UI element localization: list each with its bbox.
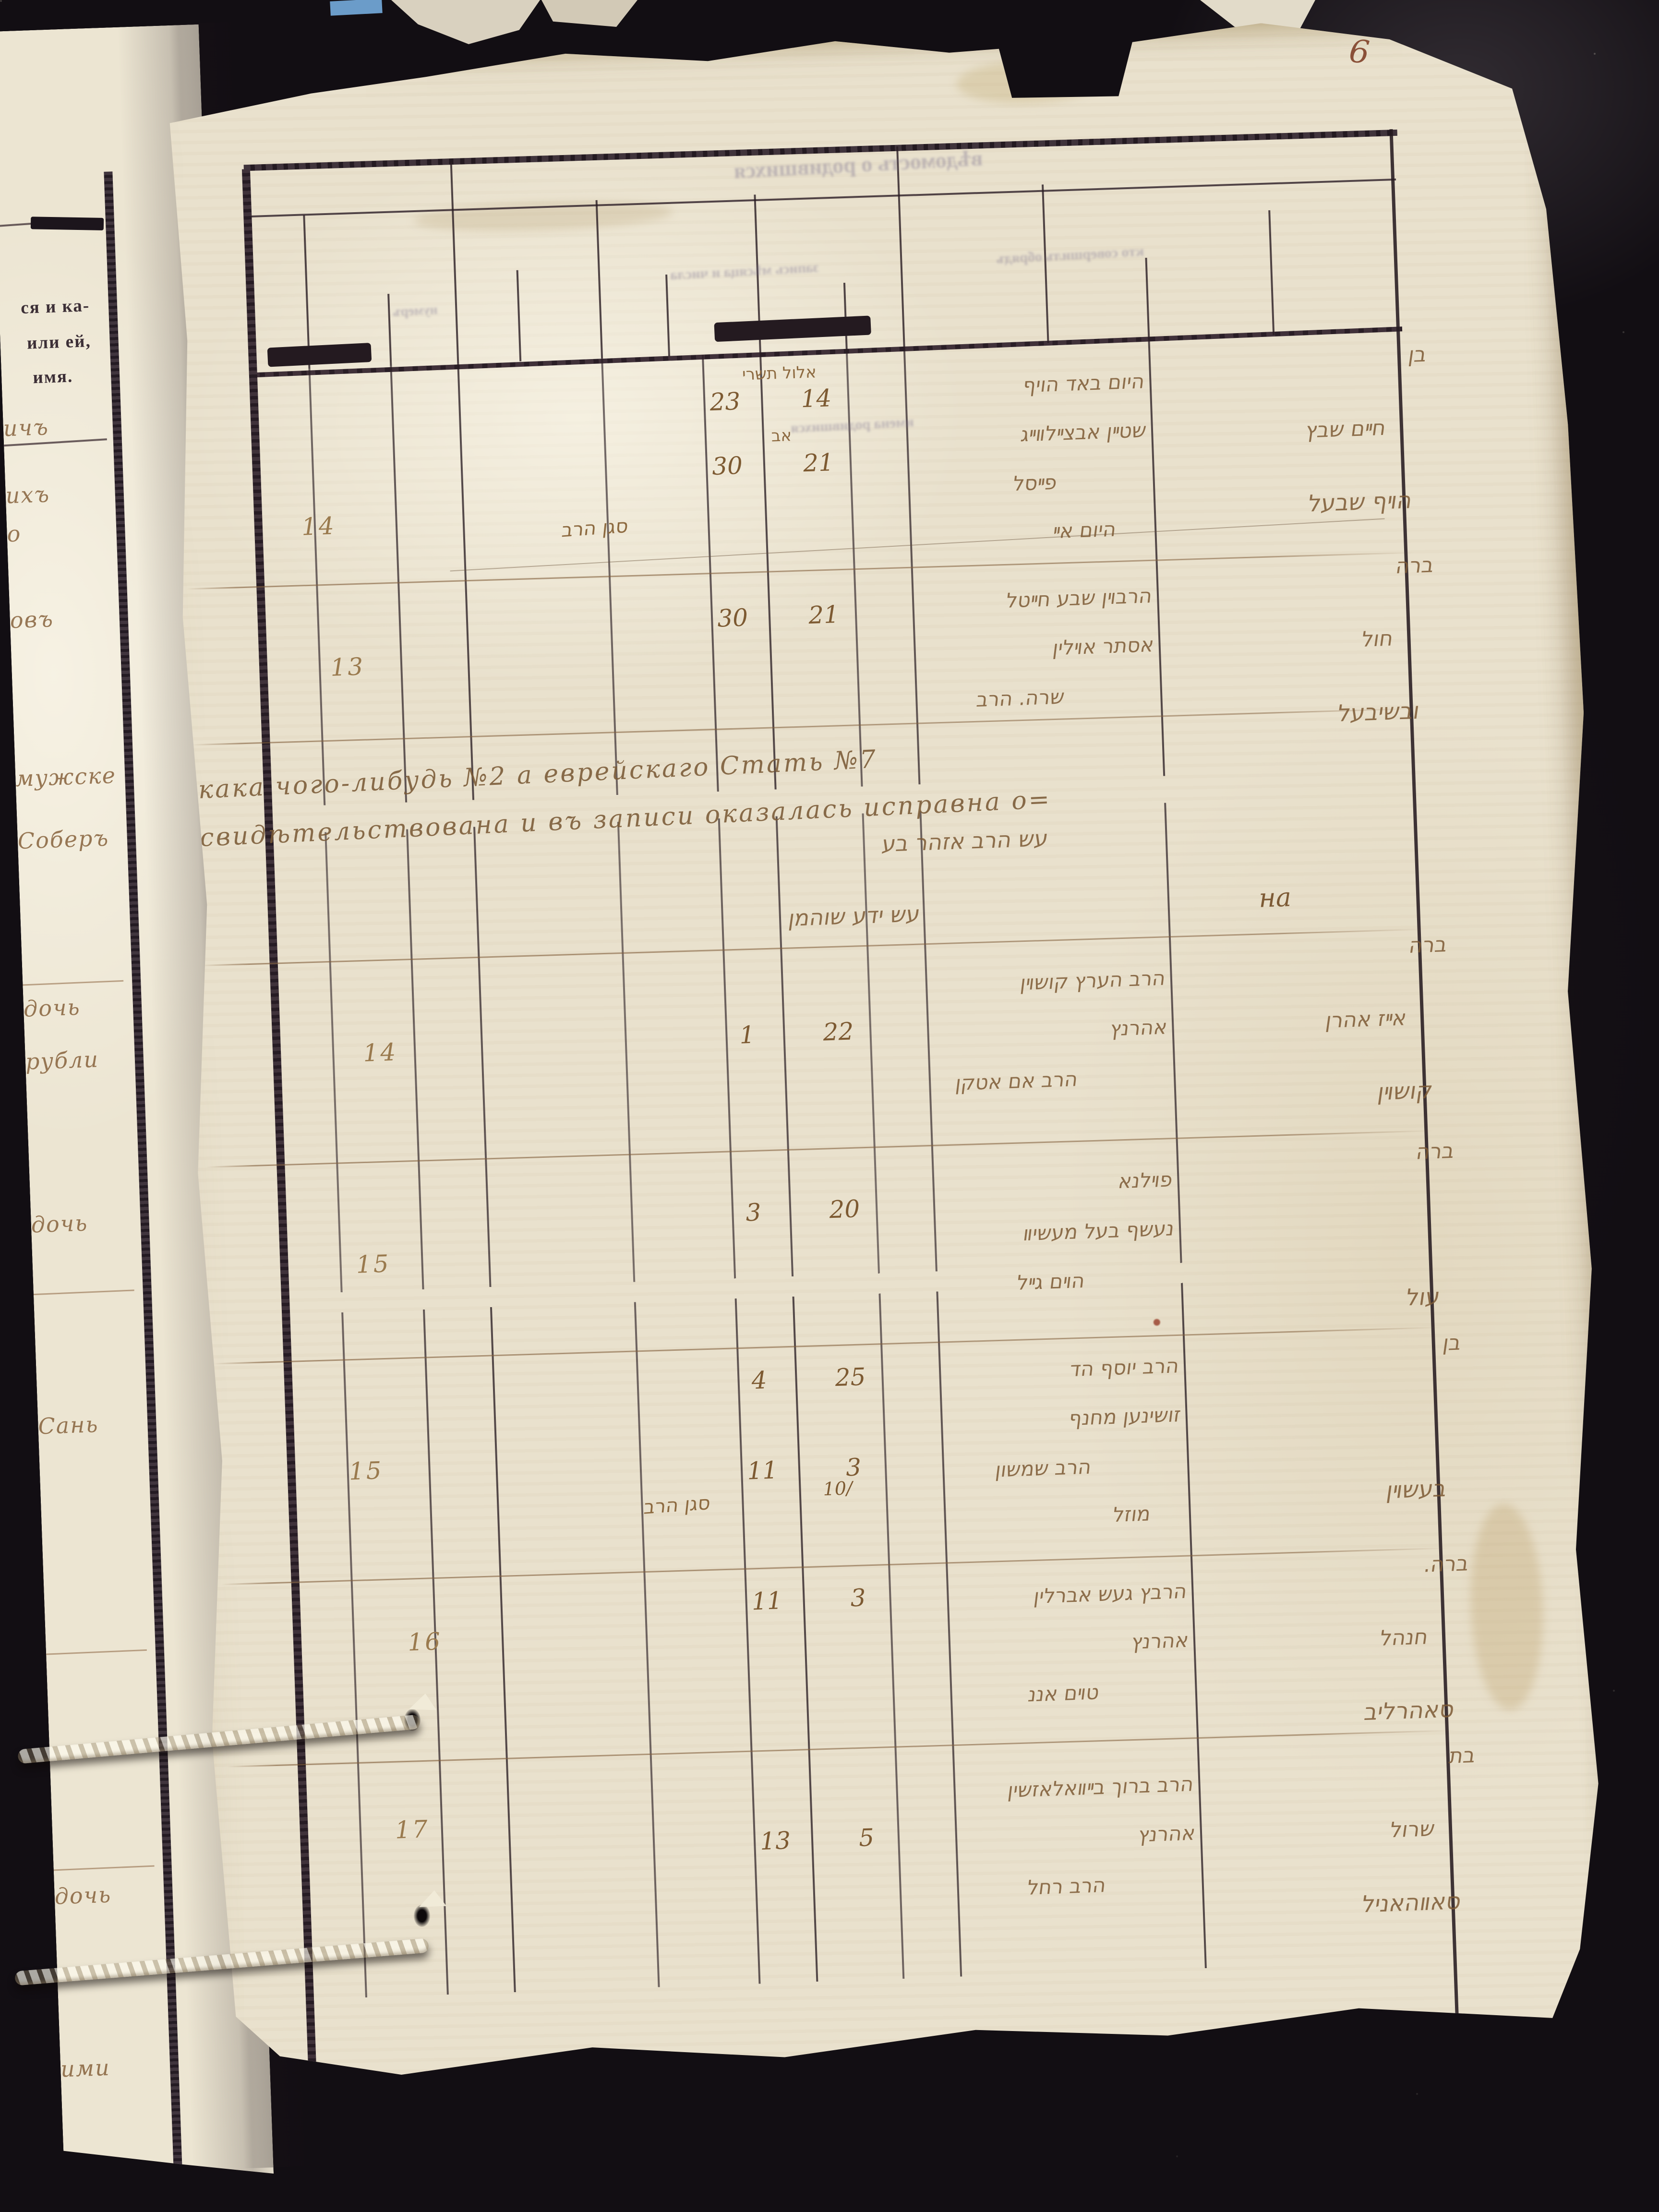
relation-column-text: בתשרולסאװהאניל <box>1212 1743 1478 1968</box>
age-stain <box>956 58 1101 106</box>
torn-paper-scrap <box>541 0 637 27</box>
relation-column-text: בןחײם שבץהױף שבעל <box>1163 342 1429 567</box>
relation-column-text: ברהאײז אהרןקושױן <box>1183 932 1450 1157</box>
relation-text-line: ובשיבעל <box>1171 697 1421 778</box>
handwritten-fragment: о <box>7 520 22 547</box>
entry-number: 16 <box>376 1626 473 1658</box>
page-number: 6 <box>1347 32 1371 71</box>
entry-number: 14 <box>270 511 367 542</box>
relation-text-line: חנהל <box>1204 1624 1430 1705</box>
age-stain <box>1467 1503 1547 1711</box>
record-text-line: הױם גײל <box>852 1256 1088 1313</box>
register-row: 15320פױלנאנעשף בעל מעשיװהױם גײלברהעול <box>278 1127 1432 1364</box>
record-text-line: הרב רחל <box>873 1861 1109 1918</box>
record-text: הרב יוסף הדזושינען מחנףהרב שמשוןמוזל <box>876 1341 1185 1548</box>
register-row: 17135הרב ברוך בײװאלאזשיןאהרנץהרב רחלבתשר… <box>300 1727 1456 2050</box>
bleedthrough-line: кто совершилъ обрядъ <box>996 243 1144 267</box>
record-text: פױלנאנעשף בעל מעשיװהױם גײל <box>869 1155 1177 1312</box>
date-number: 11 <box>721 1455 804 1486</box>
record-text: הרב ברוך בײװאלאזשיןאהרנץהרב רחל <box>890 1760 1198 1917</box>
entry-number: 14 <box>332 1037 429 1068</box>
register-page: 6 вѣдомость о родившихсязапись мѣсяца и … <box>139 13 1631 2121</box>
header-column-stub <box>517 270 522 361</box>
handwritten-fragment: дочь <box>23 994 81 1022</box>
relation-text-line: ברה <box>1179 932 1449 1014</box>
register-row: 14אלול תשרי2314אב3021סגן הרבהיום באד הוי… <box>251 331 1405 589</box>
row-rule <box>34 1289 134 1295</box>
relation-column-text: בןבעשױן <box>1197 1331 1464 1556</box>
relation-text-line: ברה <box>1187 1139 1456 1220</box>
handwritten-fragment: рубли <box>25 1046 99 1074</box>
header-column-stub <box>896 146 905 348</box>
handwritten-fragment: мужске <box>15 762 116 792</box>
relation-text-line: סאװהאניל <box>1213 1887 1463 1968</box>
annotation-hebrew-line: עש ידע שוהמן <box>787 895 1078 931</box>
header-column-stub <box>1268 210 1274 335</box>
entry-number: 13 <box>299 651 396 683</box>
printed-fragment: ся и ка- <box>0 295 90 319</box>
record-text-line: זושינען מחנף <box>909 1390 1184 1449</box>
ink-mark <box>31 216 104 230</box>
register-row: 14122הרב הערץ קושױןאהרנץהרב אם אטקןברהאײ… <box>272 926 1425 1167</box>
handwritten-fragment: овъ <box>10 606 54 633</box>
header-column-stub <box>1145 258 1150 339</box>
row-rule <box>46 1649 147 1655</box>
record-text-line: מוזל <box>879 1489 1154 1548</box>
record-text-line: שרה. הרב <box>831 672 1067 729</box>
handwritten-fragment: ими <box>60 2055 110 2082</box>
handwritten-fragment: Сань <box>38 1411 99 1439</box>
torn-paper-scrap <box>391 0 540 44</box>
date-number: 13 <box>734 1826 817 1856</box>
header-ink-bar <box>714 315 871 342</box>
record-text: היום באד הויףשטײן אבצײלװײגפײסלהיום אײ <box>842 357 1151 563</box>
record-text-line: נעשף בעל מעשיװ <box>902 1204 1177 1262</box>
header-column-stub <box>387 294 392 366</box>
entry-number: 15 <box>318 1455 415 1487</box>
header-column-stub <box>665 275 670 356</box>
row-rule <box>23 980 123 986</box>
date-number: 3 <box>712 1197 794 1228</box>
record-text: הרבױן שבע חײטלאסתר אױליןשרה. הרב <box>849 571 1156 729</box>
relation-text-line: בעשױן <box>1199 1475 1449 1556</box>
entry-number: 15 <box>325 1249 422 1280</box>
clerk-note: סגן הרב <box>514 512 675 545</box>
record-text-line: אסתר אױלין <box>882 620 1157 679</box>
lacing-hole <box>414 1905 430 1927</box>
annotation-mark: на <box>1258 882 1292 913</box>
bleedthrough-line: нумеръ <box>393 302 438 320</box>
record-text: הרב הערץ קושױןאהרנץהרב אם אטקן <box>862 954 1169 1111</box>
relation-text-line: ברה <box>1166 553 1436 634</box>
printed-fragment: имя. <box>0 366 73 390</box>
header-column-stub <box>596 200 603 359</box>
record-text-line: אהרנץ <box>917 1615 1191 1674</box>
relation-text-line: בת <box>1208 1743 1477 1825</box>
relation-text-line: חײם שבץ <box>1162 416 1388 496</box>
handwritten-fragment: дочь <box>31 1210 88 1238</box>
date-number: 30 <box>686 451 769 481</box>
relation-text-line: ברה. <box>1201 1551 1470 1633</box>
handwritten-fragment: ичъ <box>3 414 49 441</box>
entry-number: 17 <box>364 1814 461 1845</box>
table-band-rule <box>245 179 1396 217</box>
register-row: 1542511310/סגן הרבהרב יוסף הדזושינען מחנ… <box>286 1324 1440 1585</box>
record-text-line: פײסל <box>824 458 1060 515</box>
date-number: 23 <box>684 386 766 417</box>
relation-text-line: בן <box>1159 342 1428 424</box>
blue-paper-scrap <box>330 0 382 16</box>
record-text-line: הרב אם אטקן <box>844 1055 1081 1112</box>
record-text-line: שטײן אבצײלװײג <box>875 406 1149 464</box>
record-text-line: טױם אננ <box>866 1668 1102 1725</box>
dust-speckles <box>0 0 2 2</box>
relation-text-line <box>1196 1404 1422 1484</box>
handwritten-fragment: дочь <box>54 1882 112 1910</box>
record-text-line: הרב שמשון <box>858 1442 1094 1499</box>
photo-of-register-page: ся и ка- или ей, имя. ичъихъоовъмужскеСо… <box>0 0 1659 2212</box>
register-table: вѣдомость о родившихсязапись мѣсяца и чи… <box>244 129 1456 2064</box>
record-text-line: אהרנץ <box>924 1808 1198 1867</box>
bleedthrough-line: запись мѣсяца и числа <box>670 259 819 283</box>
row-rule <box>54 1865 155 1871</box>
annotation-hebrew-line: עש הרב אזהר בע <box>880 821 1172 857</box>
date-number: 11 <box>726 1586 808 1616</box>
record-text: הרבץ געש אברליןאהרנץטױם אננ <box>884 1567 1191 1724</box>
date-number: 30 <box>691 603 774 634</box>
date-number: 4 <box>718 1365 801 1396</box>
header-ink-bar <box>267 343 372 367</box>
clerk-note: סגן הרב <box>597 1489 758 1522</box>
header-column-stub <box>450 162 459 363</box>
relation-text-line: חול <box>1169 626 1395 706</box>
date-number: 1 <box>706 1020 789 1050</box>
handwritten-fragment: ихъ <box>5 481 50 508</box>
relation-text-line <box>1189 1212 1415 1292</box>
relation-text-line: בן <box>1193 1330 1463 1412</box>
printed-fragment: или ей, <box>0 331 91 355</box>
record-text-line: אהרנץ <box>895 1002 1170 1061</box>
handwritten-fragment: Соберъ <box>17 825 109 854</box>
relation-column-text: ברהחולובשיבעל <box>1170 553 1437 778</box>
annotation-cyrillic-line: кака чого-либудь №2 а еврейскаго Стать №… <box>198 745 878 805</box>
relation-text-line: שרול <box>1210 1816 1436 1897</box>
relation-text-line: אײז אהרן <box>1182 1006 1408 1086</box>
record-text-line: היום אײ <box>844 505 1119 563</box>
